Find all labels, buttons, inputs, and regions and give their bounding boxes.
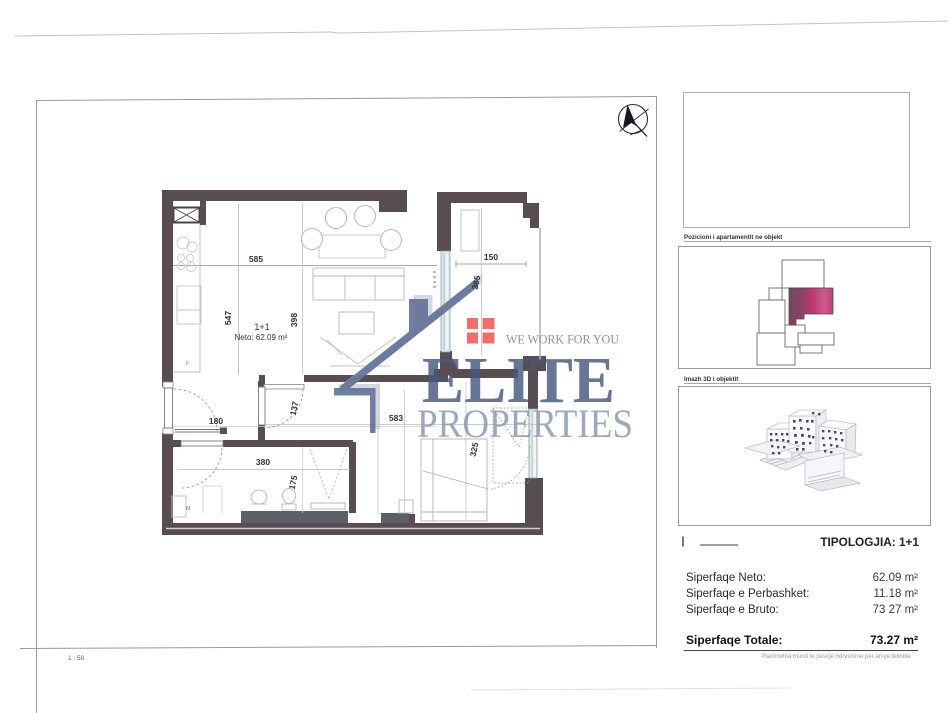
svg-text:585: 585	[249, 254, 263, 264]
svg-text:547: 547	[223, 311, 233, 325]
svg-text:PROPERTIES: PROPERTIES	[417, 401, 633, 446]
svg-text:Neto: 62.09 m²: Neto: 62.09 m²	[235, 333, 288, 342]
svg-text:11.18 m²: 11.18 m²	[873, 588, 918, 600]
svg-text:Imazh 3D i objektit: Imazh 3D i objektit	[684, 376, 738, 383]
svg-text:Siperfaqe e Perbashket:: Siperfaqe e Perbashket:	[686, 588, 809, 600]
svg-text:Pozicioni i apartamentit ne ob: Pozicioni i apartamentit ne objekt	[684, 234, 782, 241]
svg-text:1+1: 1+1	[254, 322, 269, 332]
svg-text:73 27 m²: 73 27 m²	[873, 604, 919, 616]
svg-text:M: M	[186, 506, 191, 512]
svg-text:Siperfaqe e Bruto:: Siperfaqe e Bruto:	[686, 604, 779, 616]
svg-text:380: 380	[256, 457, 270, 467]
svg-text:398: 398	[289, 313, 299, 327]
svg-text:180: 180	[209, 416, 223, 426]
svg-text:62.09 m²: 62.09 m²	[873, 572, 919, 584]
svg-text:150: 150	[484, 252, 498, 262]
svg-text:Siperfaqe Neto:: Siperfaqe Neto:	[686, 572, 766, 584]
svg-text:583: 583	[389, 413, 403, 423]
svg-text:Planimetria mund te pesoje ndr: Planimetria mund te pesoje ndryshime per…	[761, 654, 911, 660]
svg-text:TIPOLOGJIA: 1+1: TIPOLOGJIA: 1+1	[820, 535, 919, 549]
svg-text:Siperfaqe Totale:: Siperfaqe Totale:	[686, 633, 782, 647]
svg-text:1 : 50: 1 : 50	[68, 655, 85, 662]
svg-text:73.27 m²: 73.27 m²	[870, 633, 918, 647]
